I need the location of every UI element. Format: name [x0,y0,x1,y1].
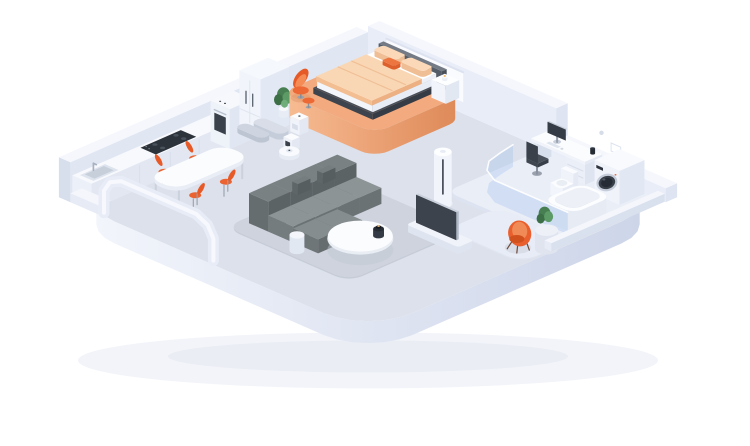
coffee-table [327,221,393,266]
smart-speaker [373,225,384,238]
tower-fan [433,148,453,209]
sofa-side-bin [290,231,305,254]
bedside-air-purifier [290,112,308,135]
isometric-scene [0,0,750,446]
robot-vacuum-1 [279,146,299,160]
bedside-table [431,74,459,104]
smart-home-floorplan-illustration: Isometric smart home floor plan illustra… [0,0,750,446]
